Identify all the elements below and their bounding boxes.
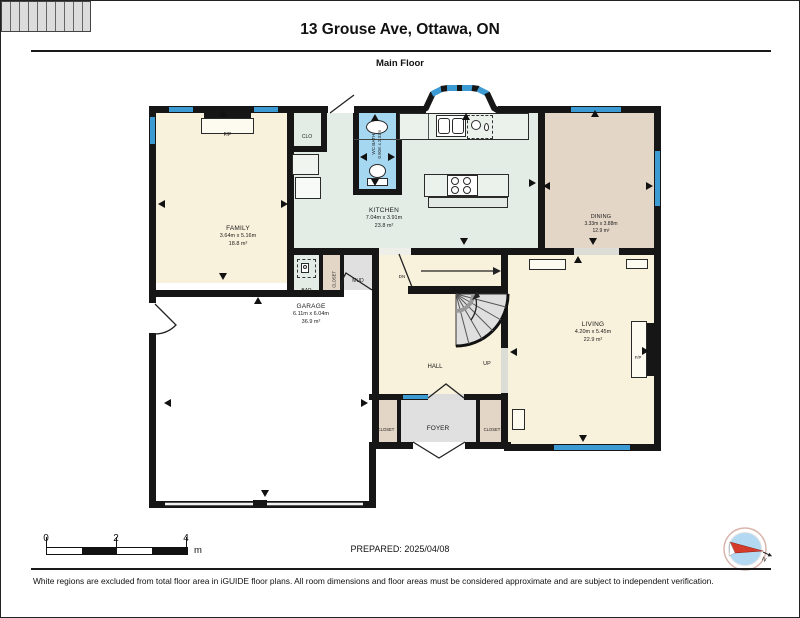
measure-arrow [158,200,165,208]
side-door-opening [328,106,354,113]
clo-label: CLO [293,124,321,145]
mud-garage-opening [344,290,372,297]
measure-arrow [281,200,288,208]
measure-arrow [574,256,582,263]
measure-arrow [462,113,470,120]
measure-arrow [219,110,227,117]
floor-vent [529,259,566,270]
dn-label: DN [394,264,410,285]
burner [463,177,471,185]
measure-arrow [642,347,649,355]
sink-basin-right [452,118,464,134]
dining-living-opening [574,248,619,255]
wall [408,286,508,294]
floor-vent [512,409,525,430]
fireplace-living-label: F/P [635,355,642,360]
dining-label: DINING 3.33m x 3.88m 12.9 m² [541,214,661,234]
floor-label: Main Floor [1,58,799,69]
measure-arrow [589,238,597,245]
measure-arrow [371,179,379,186]
dishwasher-drop [484,123,489,131]
measure-arrow [460,238,468,245]
burner [451,177,459,185]
measure-arrow [579,435,587,442]
garage-entry-opening [149,303,156,333]
foyer-hall-opening [428,394,464,400]
closet-right-label: CLOSET [480,417,504,438]
garage-door-post [253,500,267,508]
burner [451,186,459,194]
wall [353,113,359,195]
pantry-cabinet [292,154,319,175]
window [655,151,660,206]
measure-arrow [164,399,171,407]
closet-left-label: CLOSET [375,417,397,438]
measure-arrow [254,297,262,304]
window [150,117,155,144]
up-label: UP [477,351,497,372]
sink-basin-left [438,118,450,134]
burner [463,186,471,194]
garage-label: GARAGE 6.11m x 6.04m 36.9 m² [251,303,371,326]
wall [321,106,327,152]
floor-plan-page: 13 Grouse Ave, Ottawa, ON Main Floor F/P [0,0,800,618]
measure-arrow [388,153,395,161]
measure-arrow [360,153,367,161]
page-title: 13 Grouse Ave, Ottawa, ON [1,21,799,39]
measure-arrow [543,182,550,190]
wall [353,189,402,195]
bay-window [417,83,503,115]
header-divider [31,50,771,52]
wall [397,400,401,442]
window [403,395,428,399]
prepared-date: PREPARED: 2025/04/08 [1,544,799,554]
counter-divider [428,114,429,139]
floor-vent [626,259,648,269]
measure-arrow [591,110,599,117]
measure-arrow [646,182,653,190]
measure-arrow [529,179,536,187]
measure-arrow [371,114,379,121]
foyer-label: FOYER [408,416,468,437]
hall-kitchen-opening [379,248,411,255]
footer-divider [31,568,771,570]
room-garage [156,297,369,501]
family-label: FAMILY 3.64m x 5.16m 18.8 m² [178,225,298,248]
closet-small-label: CLOSET [322,264,343,294]
front-door-opening [413,442,465,449]
measure-arrow [261,490,269,497]
mud-label: MUD [343,268,373,289]
window [254,107,278,112]
dishwasher-dial [471,120,481,130]
pantry-cabinet [295,177,321,199]
measure-arrow [361,399,368,407]
bar-label: BAR [294,278,319,299]
window [169,107,193,112]
hall-label: HALL [405,354,465,375]
disclaimer-text: White regions are excluded from total fl… [33,576,714,586]
window [554,445,630,450]
measure-arrow [219,273,227,280]
wc-bath-label: WC BATH 0.90m x 2.31m [371,115,383,173]
wall [369,444,376,508]
hall-living-opening [501,348,508,393]
fireplace-family-label: F/P [224,132,232,138]
living-label: LIVING 4.20m x 5.45m 22.9 m² [533,321,653,344]
kitchen-label: KITCHEN 7.04m x 3.91m 23.8 m² [324,207,444,230]
bar-sink-drain [303,265,307,269]
measure-arrow [510,348,517,356]
